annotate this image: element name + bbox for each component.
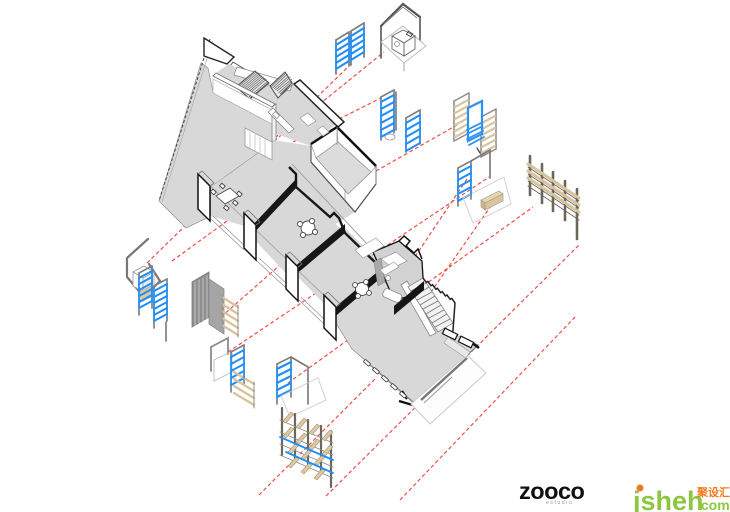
svg-text:jsheh: jsheh — [632, 486, 704, 512]
svg-text:estudio: estudio — [546, 500, 573, 506]
svg-text:.com: .com — [697, 497, 730, 512]
